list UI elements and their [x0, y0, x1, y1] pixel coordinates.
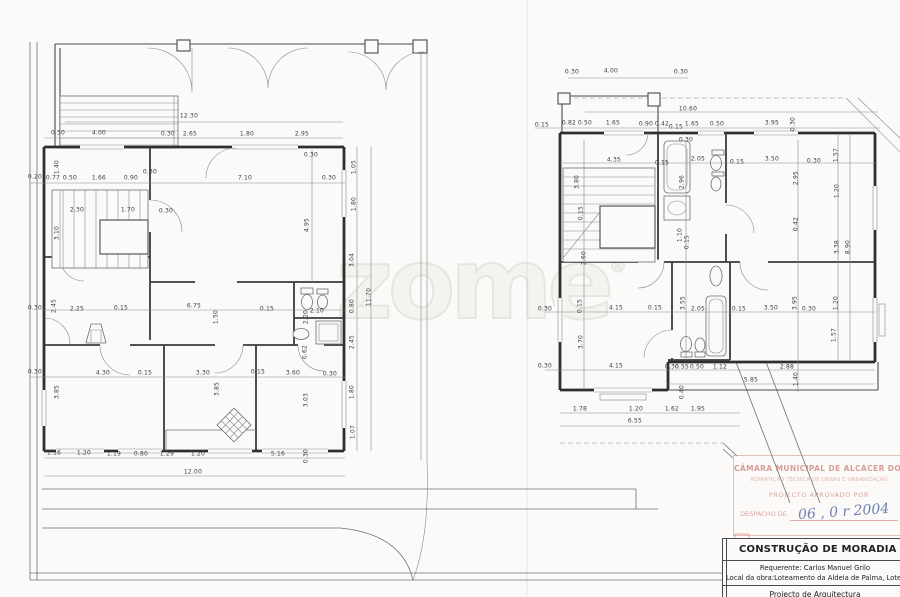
kitchen-sink	[217, 408, 251, 442]
bathroom-fixtures-bottom	[681, 266, 727, 357]
kitchen-counter	[166, 408, 256, 451]
roof-outline	[558, 98, 900, 503]
stamp-department: REPARTIÇÃO TÉCNICA DE OBRAS E URBANIZAÇÃ…	[734, 477, 900, 483]
stamp-dispatch-row: DESPACHO DE06 , 0 r 2004	[734, 504, 900, 521]
first-floor-plan	[535, 78, 900, 503]
lower-balcony	[668, 362, 878, 390]
title-block-project-title: CONSTRUÇÃO DE MORADIA UNIFA	[723, 538, 900, 561]
drawing-sheet: zome®	[0, 0, 900, 597]
title-block: CONSTRUÇÃO DE MORADIA UNIFA Requerente: …	[722, 538, 900, 597]
title-block-details: Requerente: Carlos Manuel Grilo Local da…	[723, 561, 900, 586]
stamp-authority: CÂMARA MUNICIPAL DE ALCÁCER DO SAL	[734, 464, 900, 473]
stamp-approved-text: PROJECTO APROVADO POR	[734, 491, 900, 499]
title-block-requester: Requerente: Carlos Manuel Grilo	[723, 564, 900, 572]
title-block-location: Local da obra:Loteamento da Aldeia de Pa…	[723, 574, 900, 582]
stamp-dispatch-label: DESPACHO DE	[740, 510, 787, 518]
handwritten-date: 06 , 0 r 2004	[798, 501, 890, 523]
upper-stairs	[563, 168, 655, 262]
interior-stairs	[52, 190, 148, 268]
terrace-door-arcs	[148, 48, 424, 92]
approval-stamp: CÂMARA MUNICIPAL DE ALCÁCER DO SAL REPAR…	[733, 455, 900, 536]
ground-floor-plan	[30, 40, 427, 476]
title-block-doc-type: Projecto de Arquitectura	[723, 586, 900, 597]
upper-balcony	[558, 93, 660, 133]
stamp-signature-line: 06 , 0 r 2004	[790, 504, 898, 521]
fireplace	[86, 324, 106, 343]
bathroom-fixtures-top	[664, 141, 724, 220]
wc-fixtures	[293, 288, 341, 344]
